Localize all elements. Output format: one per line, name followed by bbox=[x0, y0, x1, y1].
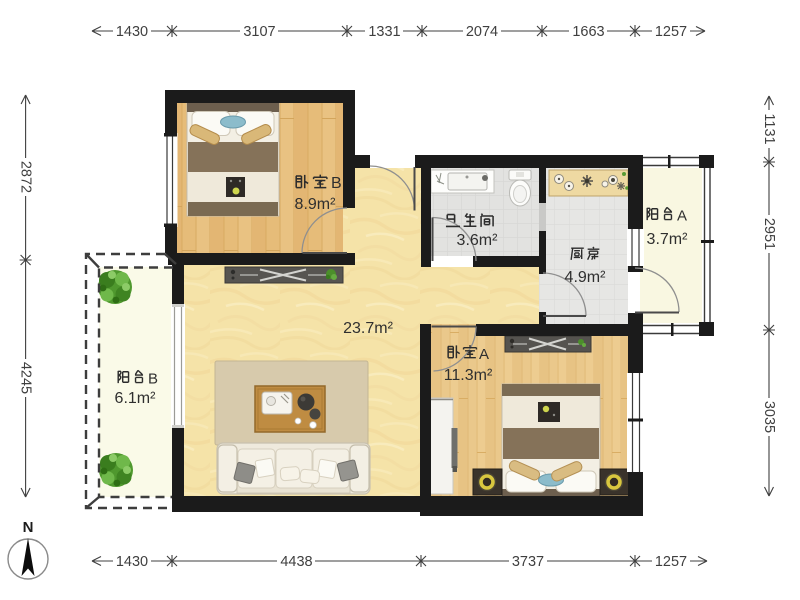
svg-text:2872: 2872 bbox=[18, 161, 34, 193]
svg-text:3035: 3035 bbox=[761, 401, 777, 433]
svg-text:6.1m²: 6.1m² bbox=[115, 390, 157, 407]
svg-text:A: A bbox=[479, 346, 489, 363]
svg-text:3737: 3737 bbox=[512, 554, 544, 570]
svg-text:1131: 1131 bbox=[761, 113, 777, 144]
svg-text:1257: 1257 bbox=[655, 554, 687, 570]
svg-text:1257: 1257 bbox=[655, 24, 687, 40]
svg-text:3107: 3107 bbox=[243, 24, 275, 40]
svg-text:3.6m²: 3.6m² bbox=[457, 232, 499, 249]
svg-text:8.9m²: 8.9m² bbox=[295, 196, 337, 213]
svg-text:4245: 4245 bbox=[18, 362, 34, 394]
svg-text:4.9m²: 4.9m² bbox=[565, 269, 607, 286]
svg-text:3.7m²: 3.7m² bbox=[647, 231, 689, 248]
svg-text:2074: 2074 bbox=[466, 24, 498, 40]
svg-text:A: A bbox=[677, 208, 687, 225]
svg-text:B: B bbox=[331, 175, 342, 192]
svg-text:1430: 1430 bbox=[116, 554, 148, 570]
svg-text:N: N bbox=[23, 519, 34, 536]
svg-text:11.3m²: 11.3m² bbox=[444, 367, 493, 384]
svg-text:1663: 1663 bbox=[572, 24, 604, 40]
svg-text:23.7m²: 23.7m² bbox=[343, 320, 393, 337]
svg-text:B: B bbox=[148, 371, 158, 388]
svg-text:4438: 4438 bbox=[280, 554, 312, 570]
svg-text:1331: 1331 bbox=[368, 24, 400, 40]
svg-text:2951: 2951 bbox=[761, 218, 777, 250]
svg-text:1430: 1430 bbox=[116, 24, 148, 40]
